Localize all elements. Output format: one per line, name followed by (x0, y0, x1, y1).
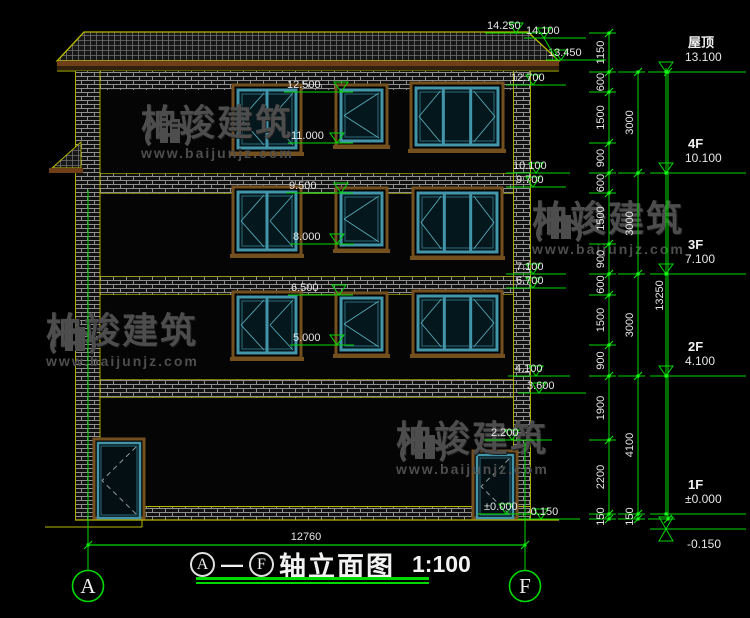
dimension-value: 13250 (654, 280, 666, 311)
grip-dot (665, 273, 668, 276)
floor-flag-value: ±0.000 (685, 492, 722, 506)
dimension-value: 150 (595, 507, 607, 525)
dimension-value: 3000 (624, 211, 636, 235)
dimension-value: 3000 (624, 110, 636, 134)
dimension-value: 900 (595, 351, 607, 369)
elevation-mark-value: 11.000 (291, 130, 324, 142)
floor-flag-value: 13.100 (685, 50, 722, 64)
floor-flag-name: 3F (688, 237, 703, 252)
dimension-value: 600 (595, 73, 607, 91)
dimension-value: 1900 (595, 396, 607, 420)
elevation-triangle-icon (332, 285, 346, 295)
elevation-mark-value: 12.700 (511, 72, 545, 84)
grip-dot (608, 71, 611, 74)
elevation-mark-value: 7.100 (516, 261, 544, 273)
grip-dot (637, 172, 640, 175)
dimension-value: 900 (595, 250, 607, 268)
grip-dot (608, 142, 611, 145)
elevation-mark-value: 10.100 (513, 160, 547, 172)
elevation-triangle-icon (330, 335, 344, 345)
dimension-value: 2200 (595, 465, 607, 489)
axis-bubble-label: A (80, 574, 96, 598)
title-axis-end-bubble: F (249, 552, 274, 577)
title-axis-start-bubble: A (190, 552, 215, 577)
grip-dot (665, 375, 668, 378)
elevation-triangle-icon (330, 133, 344, 143)
grip-dot (608, 273, 611, 276)
dimension-value: 600 (595, 275, 607, 293)
elevation-marks: 14.25014.10013.45012.70012.50011.00010.1… (284, 20, 606, 519)
ground-dimension-value: 12760 (291, 531, 322, 543)
dimension-value: 900 (595, 149, 607, 167)
grip-dot (637, 518, 640, 521)
floor-flag-name: 1F (688, 477, 703, 492)
grip-dot (608, 375, 611, 378)
elevation-mark-value: ±0.000 (484, 501, 518, 513)
grip-dot (608, 294, 611, 297)
elevation-mark-value: 5.000 (293, 332, 321, 344)
grip-dot (667, 518, 670, 521)
grip-dot (608, 91, 611, 94)
elevation-mark-value: -0.150 (527, 506, 558, 518)
dimension-value: 1500 (595, 105, 607, 129)
grip-dot (637, 513, 640, 516)
axis-and-ground-dimension: 12760AF (73, 190, 541, 602)
dimension-value: 1150 (595, 41, 607, 65)
grip-dot (608, 192, 611, 195)
dimension-value: 1500 (595, 206, 607, 230)
floor-flag-value: -0.150 (687, 537, 721, 551)
dimension-value: 4100 (624, 433, 636, 457)
grip-dot (665, 513, 668, 516)
dimension-overlay: 1150600150090060015009006001500900190022… (0, 0, 750, 618)
grip-dot (637, 375, 640, 378)
grip-dot (608, 518, 611, 521)
floor-flag-value: 10.100 (685, 151, 722, 165)
title-dash: — (221, 552, 243, 578)
title-scale: 1:100 (412, 551, 471, 578)
elevation-mark-value: 12.500 (287, 79, 321, 91)
dimension-value: 600 (595, 174, 607, 192)
elevation-mark-value: 9.500 (289, 180, 317, 192)
floor-flag-name: 2F (688, 339, 703, 354)
cad-elevation-drawing: 柏竣建筑 www.baijunjz.com 柏竣建筑 www.baijunjz.… (0, 0, 750, 618)
elevation-mark-value: 14.250 (487, 20, 521, 32)
dimension-value: 150 (624, 507, 636, 525)
title-underline (196, 582, 429, 584)
floor-flag-name: 4F (688, 136, 703, 151)
grip-dot (608, 243, 611, 246)
elevation-triangle-icon (334, 82, 348, 92)
elevation-mark-value: 4.100 (515, 363, 543, 375)
axis-bubble-label: F (519, 574, 531, 598)
grip-dot (637, 71, 640, 74)
right-dimension-chains: 1150600150090060015009006001500900190022… (589, 29, 675, 526)
grip-dot (608, 172, 611, 175)
elevation-mark-value: 9.700 (516, 174, 544, 186)
title-underline (196, 577, 429, 580)
elevation-mark-value: 8.000 (293, 231, 321, 243)
grip-dot (665, 71, 668, 74)
grip-dot (608, 439, 611, 442)
floor-flag-value: 4.100 (685, 354, 715, 368)
dimension-value: 3000 (624, 313, 636, 337)
floor-flag-name: 屋顶 (688, 35, 714, 50)
elevation-mark-value: 6.500 (291, 282, 319, 294)
grip-dot (665, 172, 668, 175)
elevation-mark-value: 14.100 (526, 25, 560, 37)
elevation-mark-value: 3.600 (527, 380, 555, 392)
grip-dot (608, 344, 611, 347)
elevation-triangle-icon (330, 234, 344, 244)
dimension-value: 1500 (595, 308, 607, 332)
floor-flag-value: 7.100 (685, 252, 715, 266)
grip-dot (637, 273, 640, 276)
elevation-mark-value: 2.200 (491, 427, 519, 439)
grip-dot (608, 513, 611, 516)
elevation-mark-value: 6.700 (516, 275, 544, 287)
grip-dot (608, 32, 611, 35)
elevation-triangle-icon (334, 183, 348, 193)
